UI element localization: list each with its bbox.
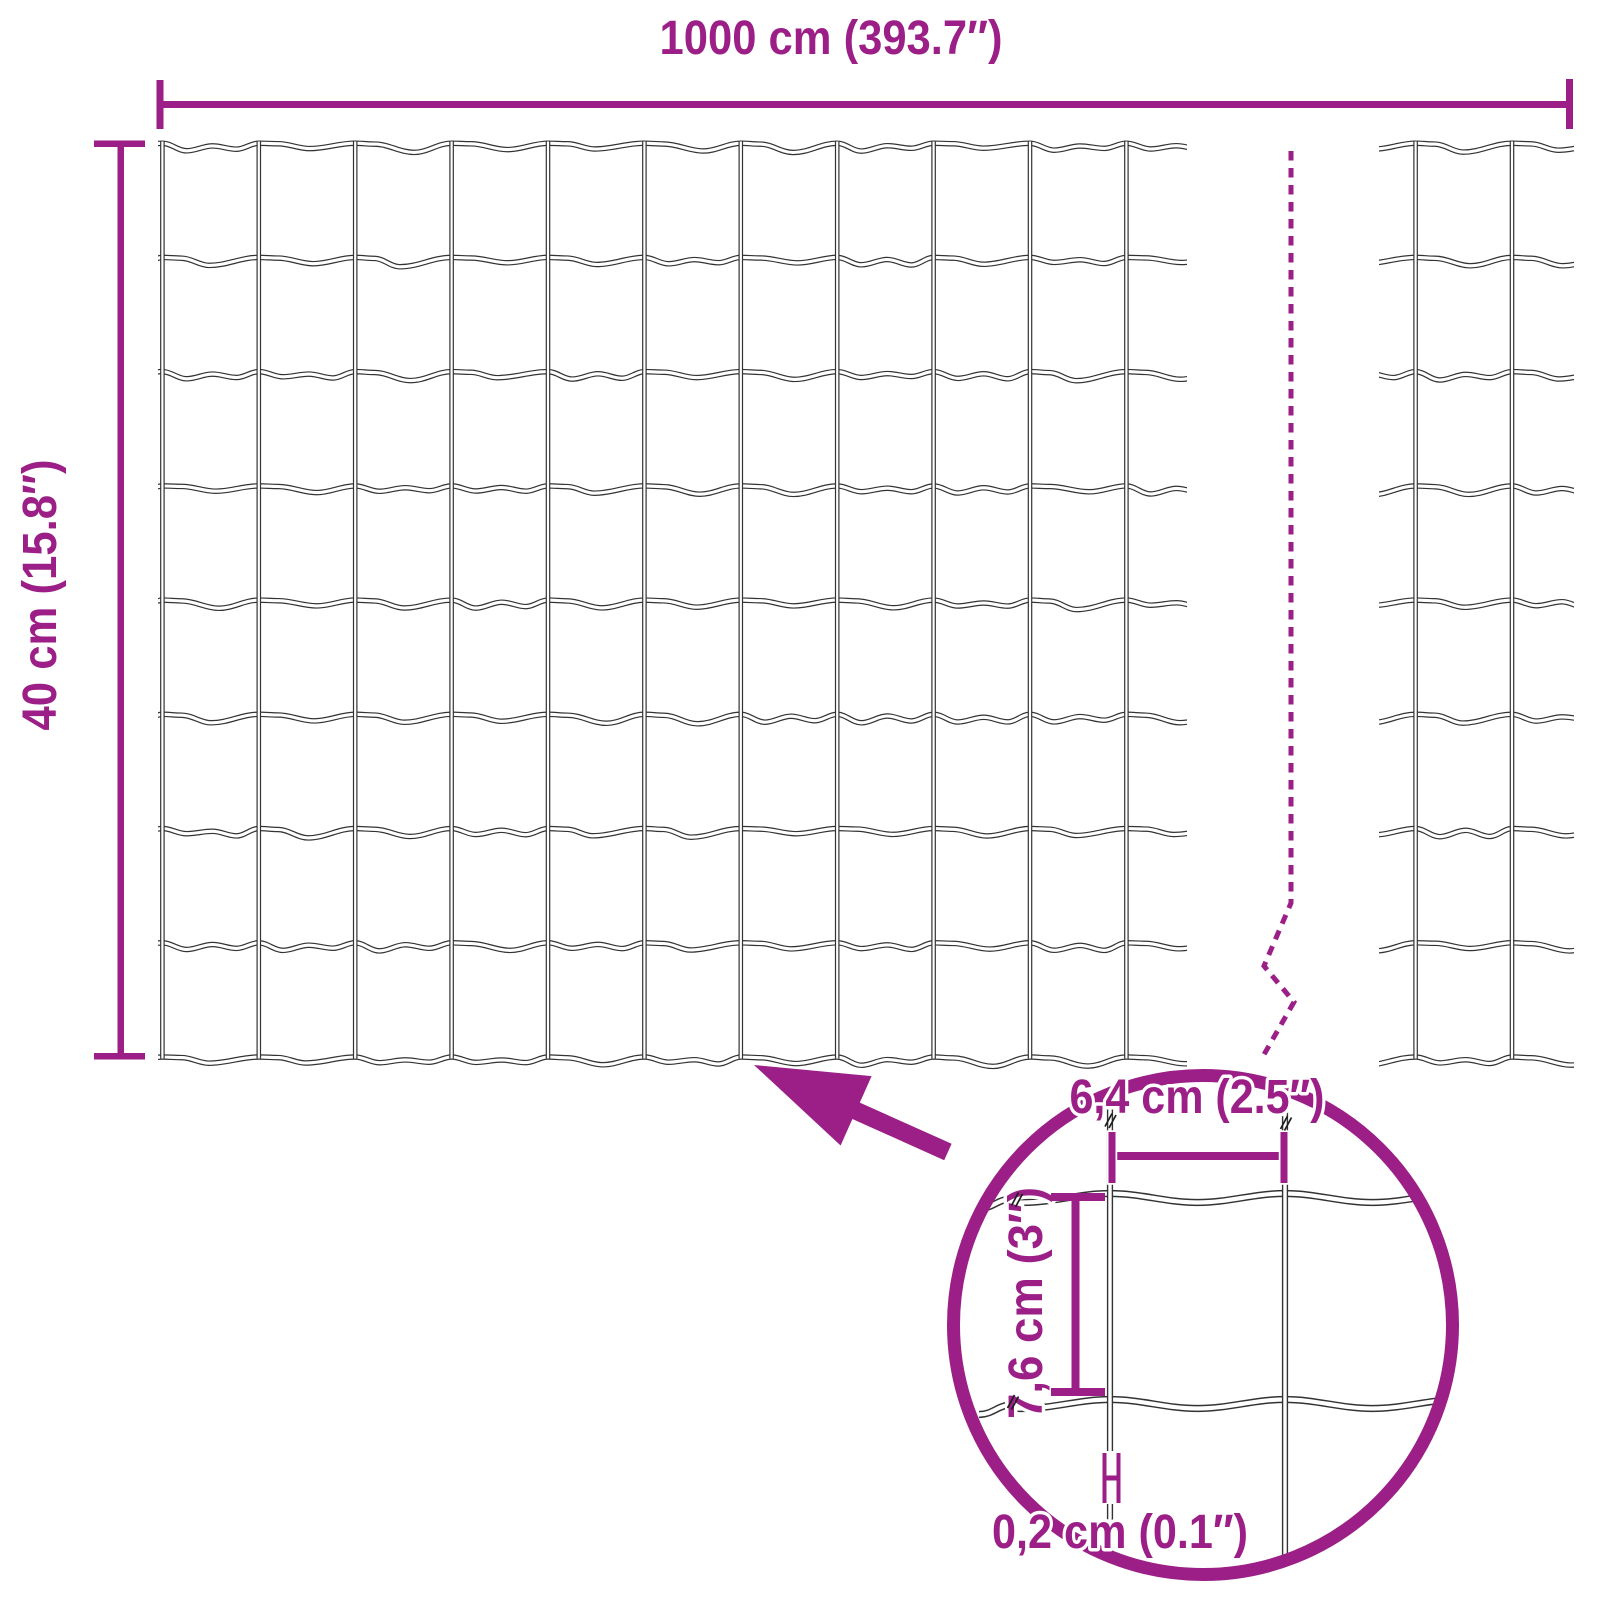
svg-text:1000 cm (393.7″): 1000 cm (393.7″) [660, 12, 1003, 65]
svg-text:7,6 cm (3″): 7,6 cm (3″) [1000, 1187, 1053, 1419]
svg-text:6,4 cm (2.5″): 6,4 cm (2.5″) [1070, 1071, 1325, 1124]
svg-text:40 cm (15.8″): 40 cm (15.8″) [14, 460, 67, 731]
svg-text:0,2 cm (0.1″): 0,2 cm (0.1″) [992, 1506, 1248, 1559]
